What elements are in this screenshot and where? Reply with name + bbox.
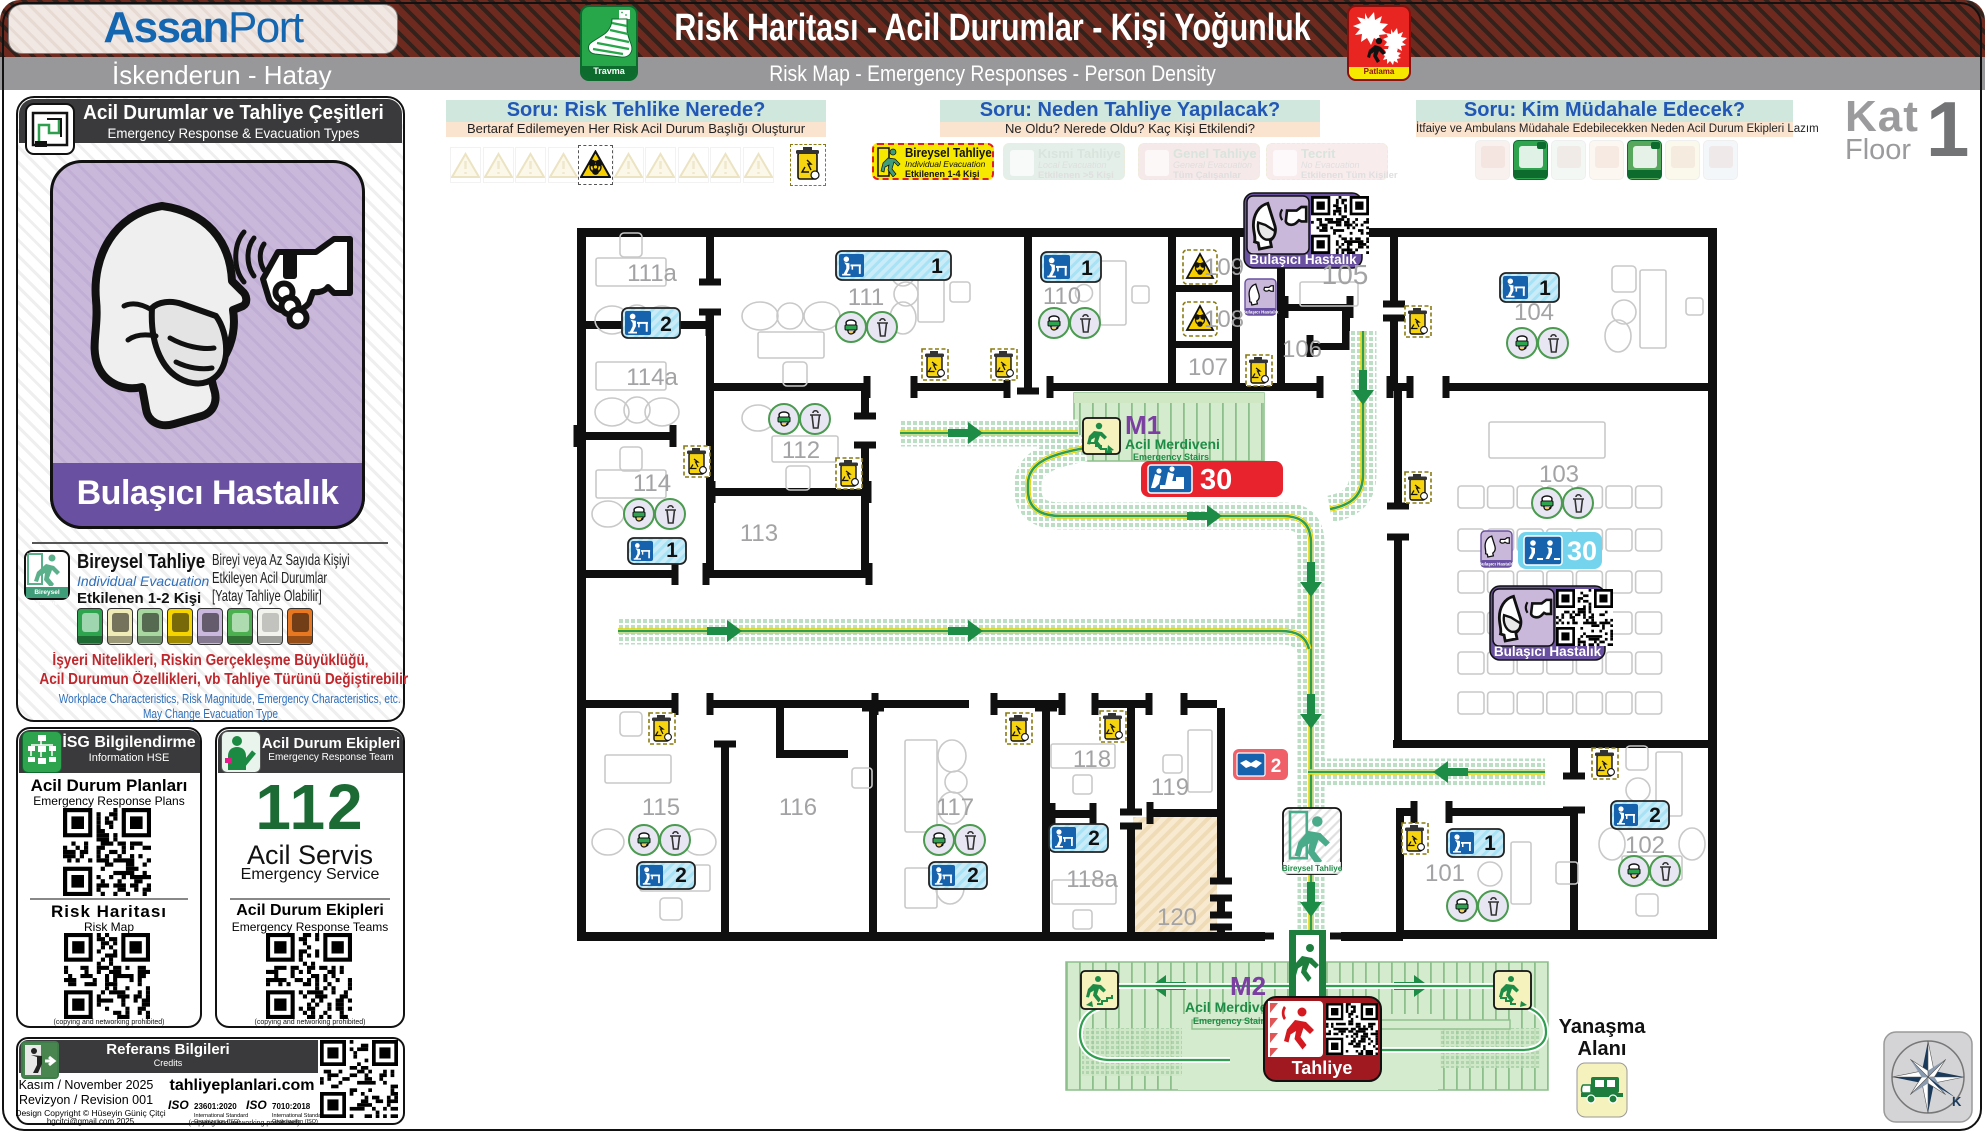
svg-text:110: 110: [1043, 283, 1081, 310]
svg-text:M2: M2: [1230, 971, 1266, 1001]
svg-text:106: 106: [1282, 336, 1322, 363]
svg-text:103: 103: [1539, 461, 1579, 488]
svg-text:108: 108: [1204, 306, 1244, 333]
svg-text:1: 1: [666, 539, 678, 562]
svg-text:2: 2: [1088, 827, 1100, 850]
svg-text:1: 1: [1081, 257, 1093, 280]
svg-text:Alanı: Alanı: [1578, 1038, 1627, 1060]
svg-text:Yanaşma: Yanaşma: [1559, 1016, 1647, 1038]
svg-text:115: 115: [642, 794, 680, 821]
svg-text:113: 113: [740, 520, 778, 547]
svg-text:111: 111: [848, 284, 884, 311]
svg-text:Emergency Stairs: Emergency Stairs: [1193, 1016, 1269, 1026]
svg-text:111a: 111a: [627, 260, 677, 287]
svg-text:K: K: [1952, 1094, 1962, 1109]
svg-text:116: 116: [779, 794, 817, 821]
svg-text:1: 1: [1539, 277, 1551, 300]
svg-text:114a: 114a: [626, 364, 678, 391]
svg-text:117: 117: [936, 794, 974, 821]
svg-text:120: 120: [1157, 904, 1197, 931]
svg-text:Bireysel Tahliye: Bireysel Tahliye: [1282, 864, 1343, 873]
svg-text:30: 30: [1567, 536, 1597, 566]
svg-text:2: 2: [967, 864, 979, 887]
svg-text:112: 112: [782, 437, 820, 464]
svg-text:118: 118: [1073, 746, 1111, 773]
svg-text:Tahliye: Tahliye: [1292, 1058, 1353, 1078]
svg-text:30: 30: [1200, 464, 1232, 496]
svg-text:118a: 118a: [1066, 866, 1118, 893]
svg-text:Bulaşıcı Hastalık: Bulaşıcı Hastalık: [1243, 310, 1279, 315]
svg-text:2: 2: [1271, 756, 1282, 777]
svg-text:109: 109: [1204, 254, 1244, 281]
svg-text:Bulaşıcı Hastalık: Bulaşıcı Hastalık: [1479, 562, 1515, 567]
svg-text:2: 2: [675, 864, 687, 887]
svg-text:2: 2: [1649, 804, 1661, 827]
svg-text:114: 114: [633, 470, 671, 497]
svg-text:119: 119: [1151, 774, 1189, 801]
svg-text:101: 101: [1425, 860, 1465, 887]
svg-text:107: 107: [1188, 354, 1228, 381]
svg-text:1: 1: [1484, 832, 1496, 855]
svg-text:102: 102: [1625, 832, 1665, 859]
svg-text:Bulaşıcı Hastalık: Bulaşıcı Hastalık: [1494, 644, 1602, 659]
svg-text:104: 104: [1514, 299, 1554, 326]
svg-text:1: 1: [931, 255, 943, 278]
svg-text:2: 2: [660, 313, 672, 336]
svg-text:Acil Merdiveni: Acil Merdiveni: [1125, 436, 1220, 452]
svg-text:105: 105: [1322, 259, 1369, 290]
svg-text:Emergency Stairs: Emergency Stairs: [1133, 452, 1209, 462]
